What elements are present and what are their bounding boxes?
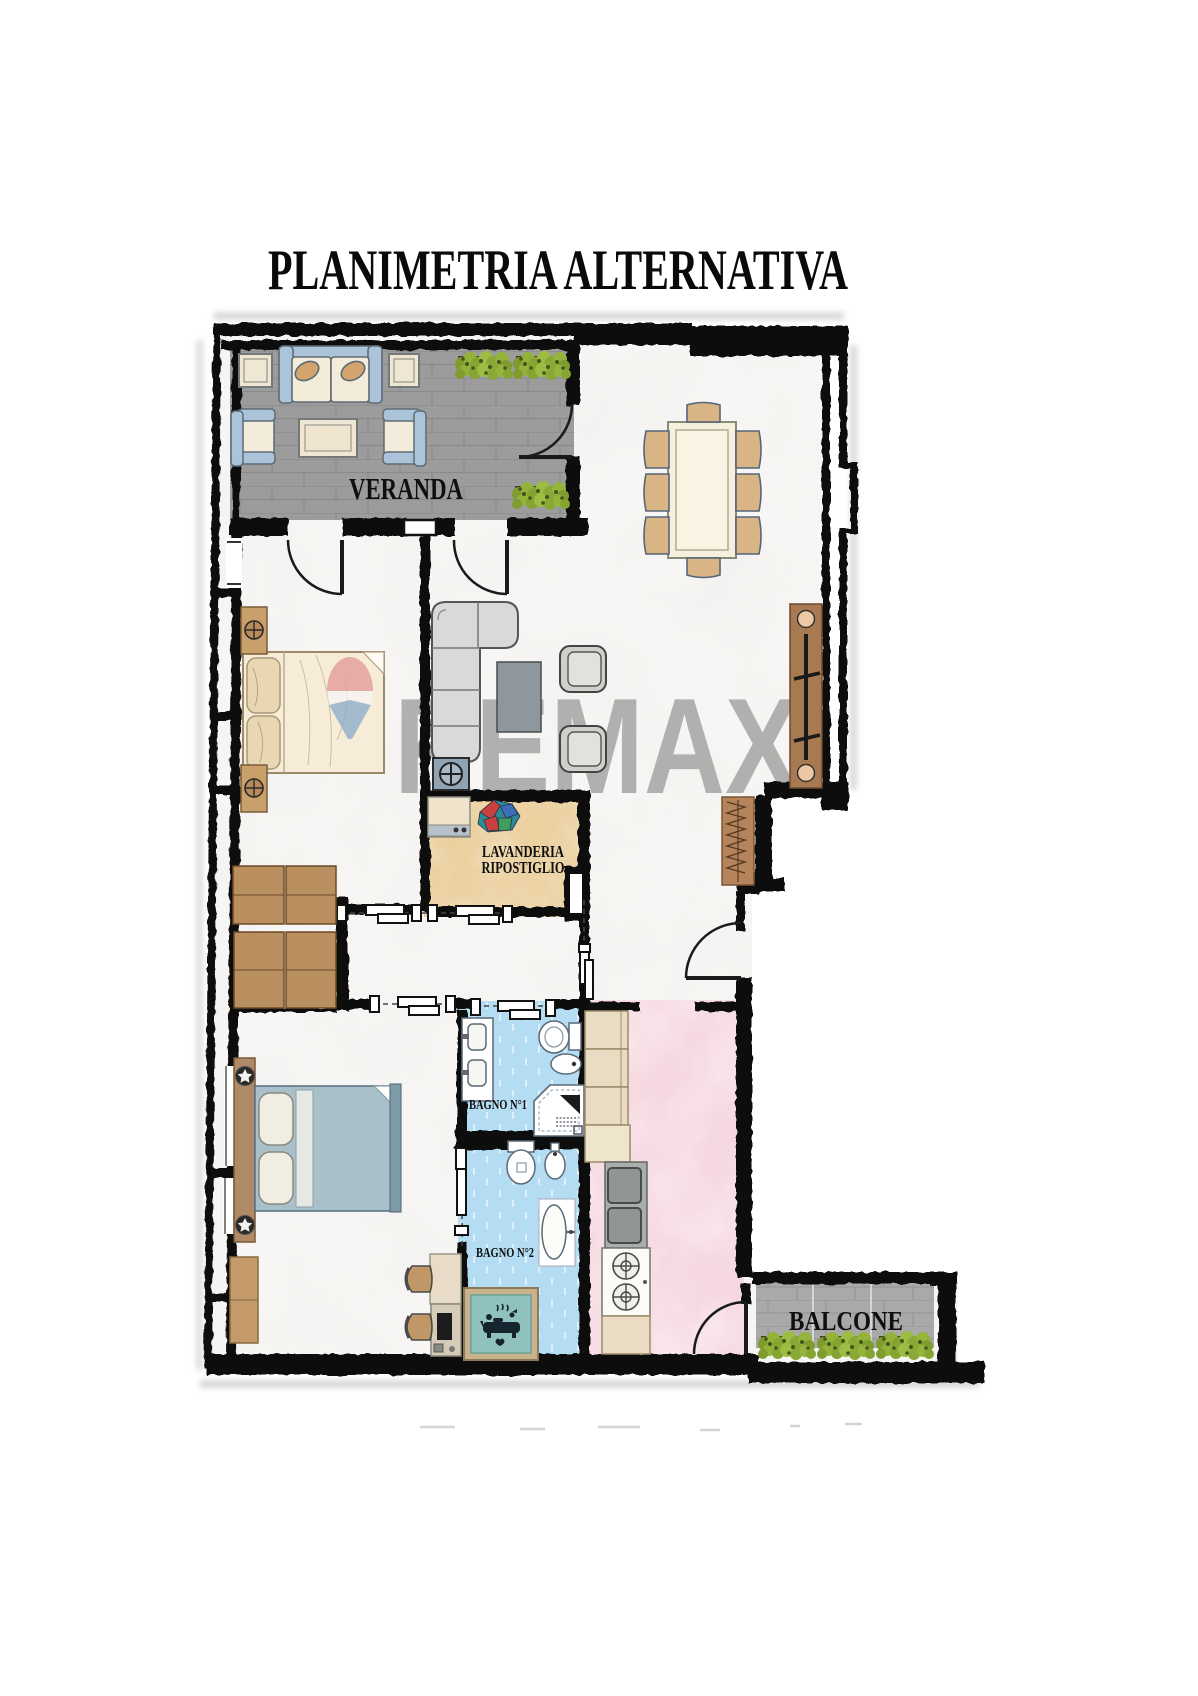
svg-text:PLANIMETRIA ALTERNATIVA: PLANIMETRIA ALTERNATIVA [268, 239, 848, 302]
svg-text:RIPOSTIGLIO: RIPOSTIGLIO [482, 858, 565, 877]
svg-text:BAGNO N°1: BAGNO N°1 [469, 1098, 527, 1113]
svg-text:VERANDA: VERANDA [349, 471, 463, 506]
svg-text:BALCONE: BALCONE [789, 1306, 903, 1336]
svg-text:BAGNO N°2: BAGNO N°2 [476, 1246, 534, 1261]
